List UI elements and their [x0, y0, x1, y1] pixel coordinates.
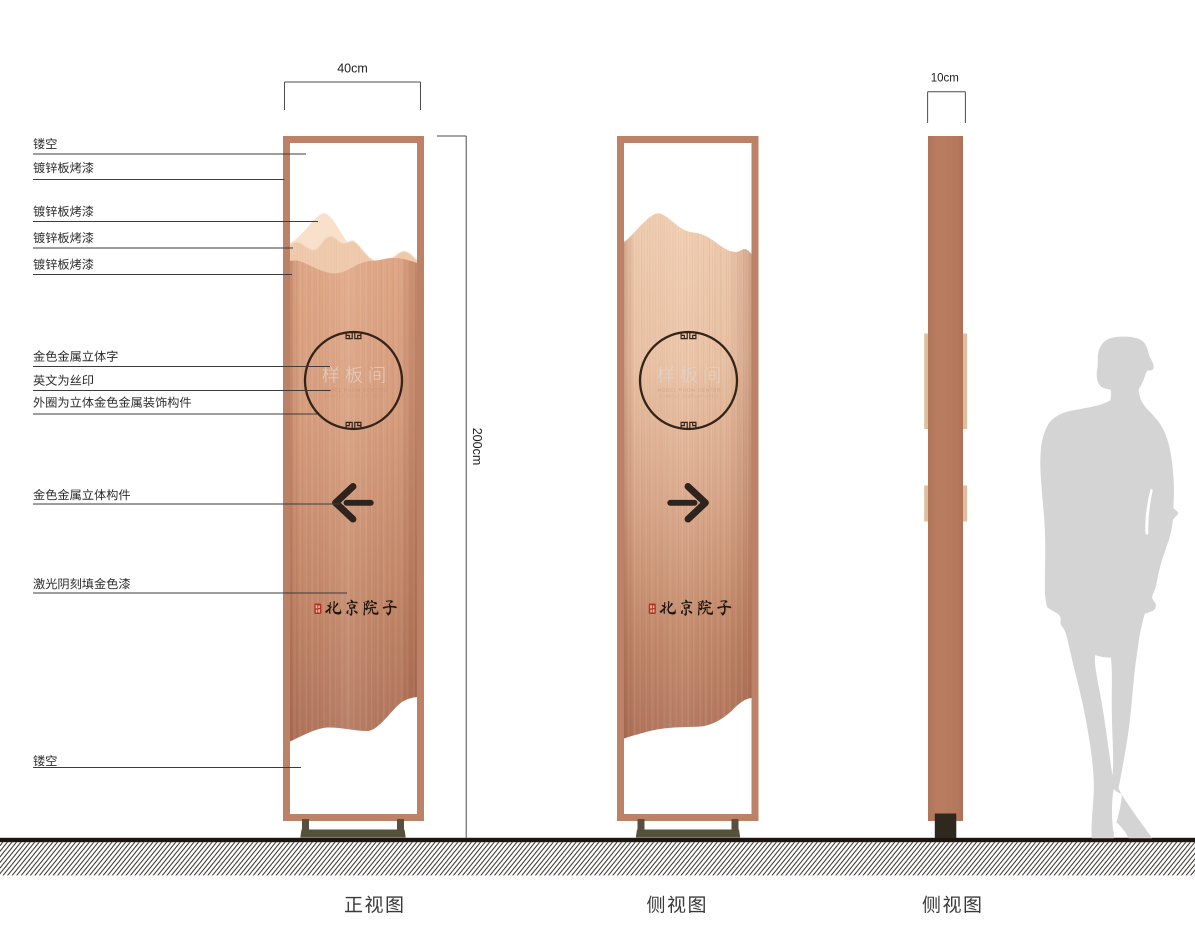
svg-text:MODEL ROOM CENTER: MODEL ROOM CENTER	[657, 387, 721, 392]
svg-text:40cm: 40cm	[337, 62, 368, 76]
svg-text:MODEL ROOM CENTER: MODEL ROOM CENTER	[322, 387, 386, 392]
svg-text:SAMPLE DISPLAY AREA: SAMPLE DISPLAY AREA	[659, 393, 720, 398]
svg-text:SAMPLE DISPLAY AREA: SAMPLE DISPLAY AREA	[324, 393, 385, 398]
svg-text:10cm: 10cm	[931, 73, 959, 85]
svg-text:200cm: 200cm	[470, 428, 484, 466]
